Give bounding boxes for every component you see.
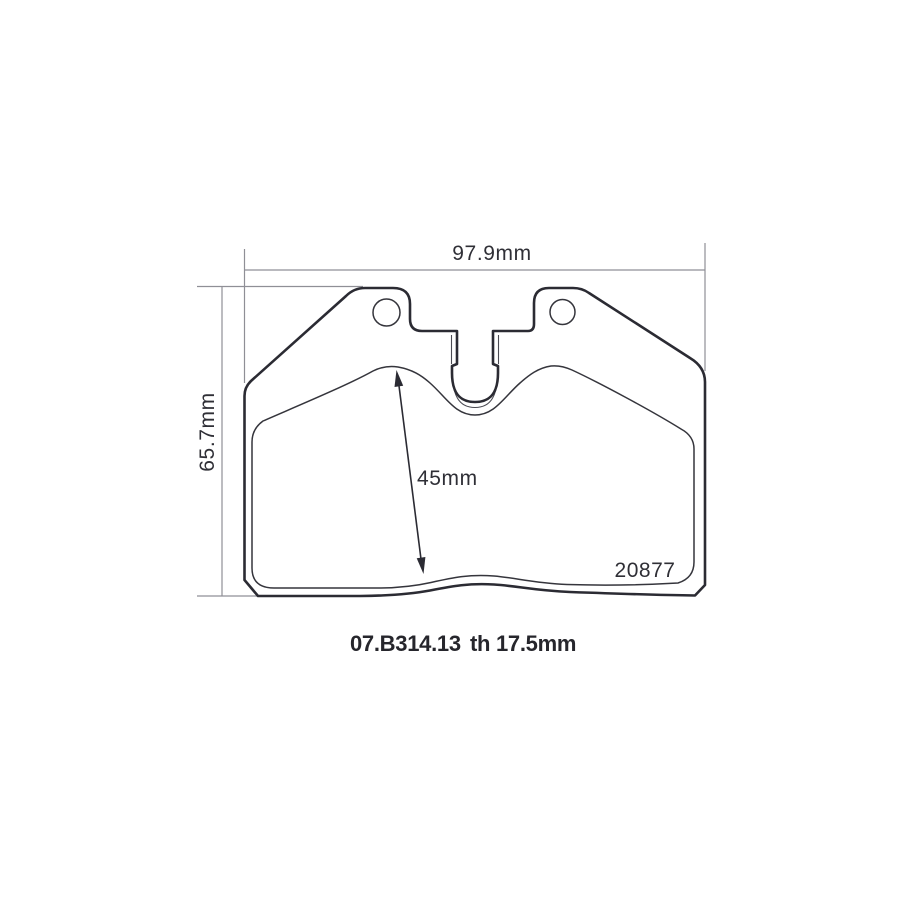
width-dimension-label: 97.9mm [452, 242, 531, 265]
dimension-lines [197, 243, 705, 596]
backing-plate-outline [245, 288, 706, 596]
friction-height-label: 45mm [417, 467, 478, 490]
friction-height-arrowhead-top [395, 370, 404, 387]
right-mounting-hole [550, 300, 575, 325]
left-mounting-hole [373, 299, 400, 326]
backplate-number-label: 20877 [615, 559, 676, 582]
height-dimension-label: 65.7mm [196, 392, 219, 471]
brake-pad-technical-drawing: 97.9mm 65.7mm 45mm 20877 07.B314.13 th 1… [0, 0, 900, 900]
drawing-svg: 97.9mm 65.7mm 45mm 20877 07.B314.13 th 1… [0, 0, 900, 900]
part-code-label: 07.B314.13 [350, 631, 461, 656]
friction-height-arrowhead-bottom [417, 557, 426, 574]
thickness-label: th 17.5mm [470, 631, 576, 656]
